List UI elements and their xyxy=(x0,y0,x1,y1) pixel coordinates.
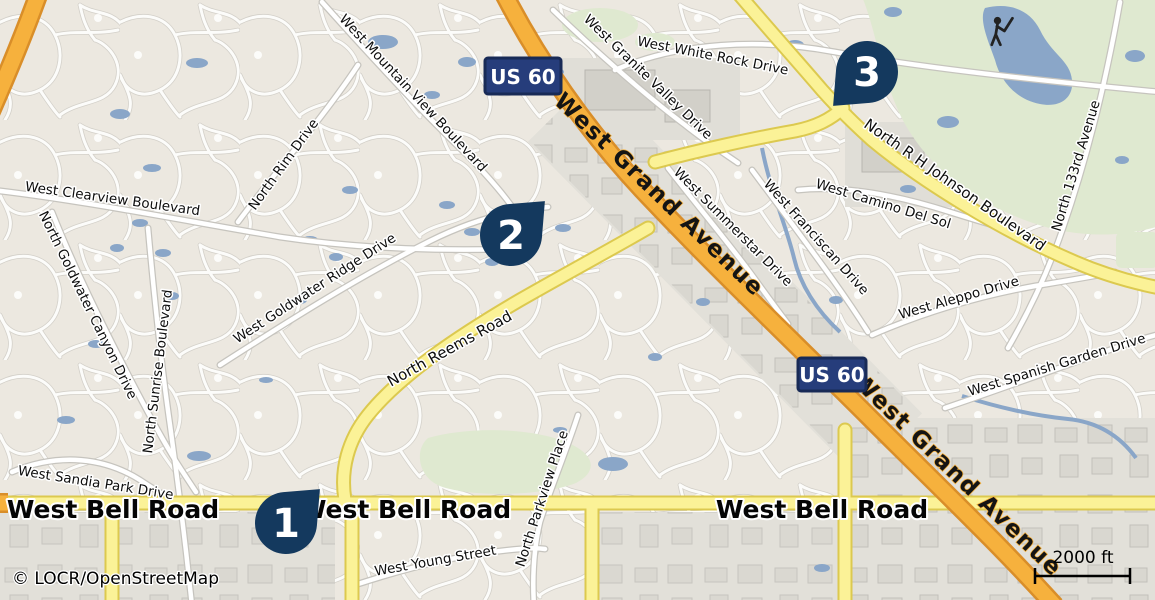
bell-road-label: West Bell Road xyxy=(716,495,928,524)
marker-2-number: 2 xyxy=(497,213,525,259)
scale-label: 2000 ft xyxy=(1052,548,1113,568)
us60-shield-label: US 60 xyxy=(799,363,864,387)
map-container[interactable]: West Mountain View Boulevard West Granit… xyxy=(0,0,1155,600)
map-canvas[interactable]: West Mountain View Boulevard West Granit… xyxy=(0,0,1155,600)
bell-road-label: West Bell Road xyxy=(299,495,511,524)
marker-1-number: 1 xyxy=(272,501,300,547)
bell-road-label: West Bell Road xyxy=(7,495,219,524)
us60-shield: US 60 xyxy=(798,358,866,391)
marker-3-number: 3 xyxy=(853,50,881,96)
attribution-text: © LOCR/OpenStreetMap xyxy=(12,569,219,589)
us60-shield: US 60 xyxy=(485,58,561,94)
us60-shield-label: US 60 xyxy=(490,65,555,89)
